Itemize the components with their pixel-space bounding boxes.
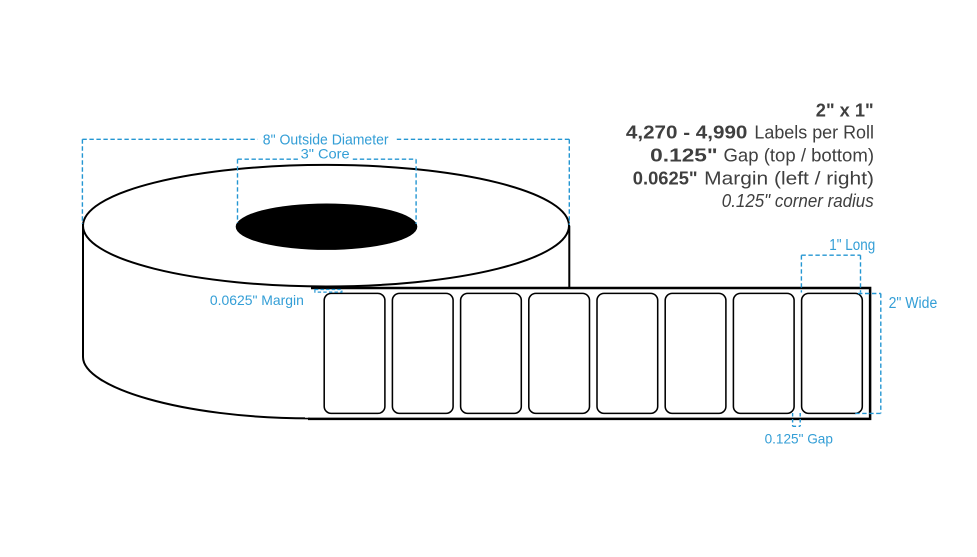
svg-text:3" Core: 3" Core bbox=[301, 145, 350, 161]
svg-text:0.125" Gap: 0.125" Gap bbox=[765, 430, 834, 446]
svg-text:2" Wide: 2" Wide bbox=[889, 295, 938, 312]
svg-text:Labels per Roll: Labels per Roll bbox=[754, 122, 874, 143]
svg-text:4,270 - 4,990: 4,270 - 4,990 bbox=[626, 122, 748, 143]
svg-text:0.0625": 0.0625" bbox=[633, 167, 698, 188]
svg-text:2" x 1": 2" x 1" bbox=[816, 100, 874, 121]
svg-text:0.125" corner radius: 0.125" corner radius bbox=[722, 190, 874, 211]
svg-text:Margin (left / right): Margin (left / right) bbox=[704, 167, 874, 188]
svg-text:1" Long: 1" Long bbox=[829, 237, 875, 254]
svg-text:0.125": 0.125" bbox=[650, 145, 718, 166]
svg-text:0.0625" Margin: 0.0625" Margin bbox=[210, 292, 304, 308]
svg-text:Gap (top / bottom): Gap (top / bottom) bbox=[724, 145, 875, 166]
